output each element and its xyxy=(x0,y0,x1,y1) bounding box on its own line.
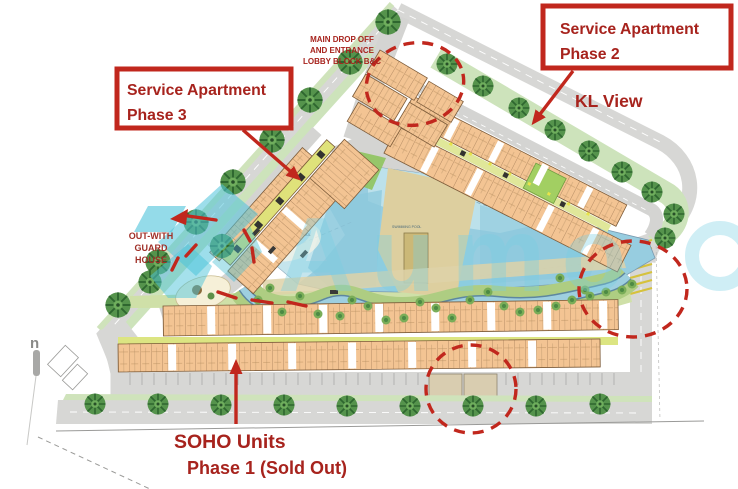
svg-text:GUARD: GUARD xyxy=(135,243,168,253)
svg-text:SOHO Units: SOHO Units xyxy=(174,431,286,453)
svg-text:Phase 3: Phase 3 xyxy=(127,107,187,124)
svg-text:LOBBY BLOCK B&C: LOBBY BLOCK B&C xyxy=(303,57,381,66)
svg-text:HOUSE: HOUSE xyxy=(135,255,167,265)
svg-text:Aumo: Aumo xyxy=(278,196,642,314)
svg-text:OUT-WITH: OUT-WITH xyxy=(129,231,174,241)
svg-text:Service Apartment: Service Apartment xyxy=(127,82,267,99)
svg-text:Phase 1 (Sold Out): Phase 1 (Sold Out) xyxy=(187,458,347,478)
svg-text:Phase 2: Phase 2 xyxy=(560,46,620,63)
svg-text:Service Apartment: Service Apartment xyxy=(560,21,700,38)
svg-text:n: n xyxy=(30,335,39,352)
svg-text:KL View: KL View xyxy=(575,91,643,111)
svg-text:MAIN DROP OFF: MAIN DROP OFF xyxy=(310,35,374,44)
svg-text:AND ENTRANCE: AND ENTRANCE xyxy=(310,46,375,55)
